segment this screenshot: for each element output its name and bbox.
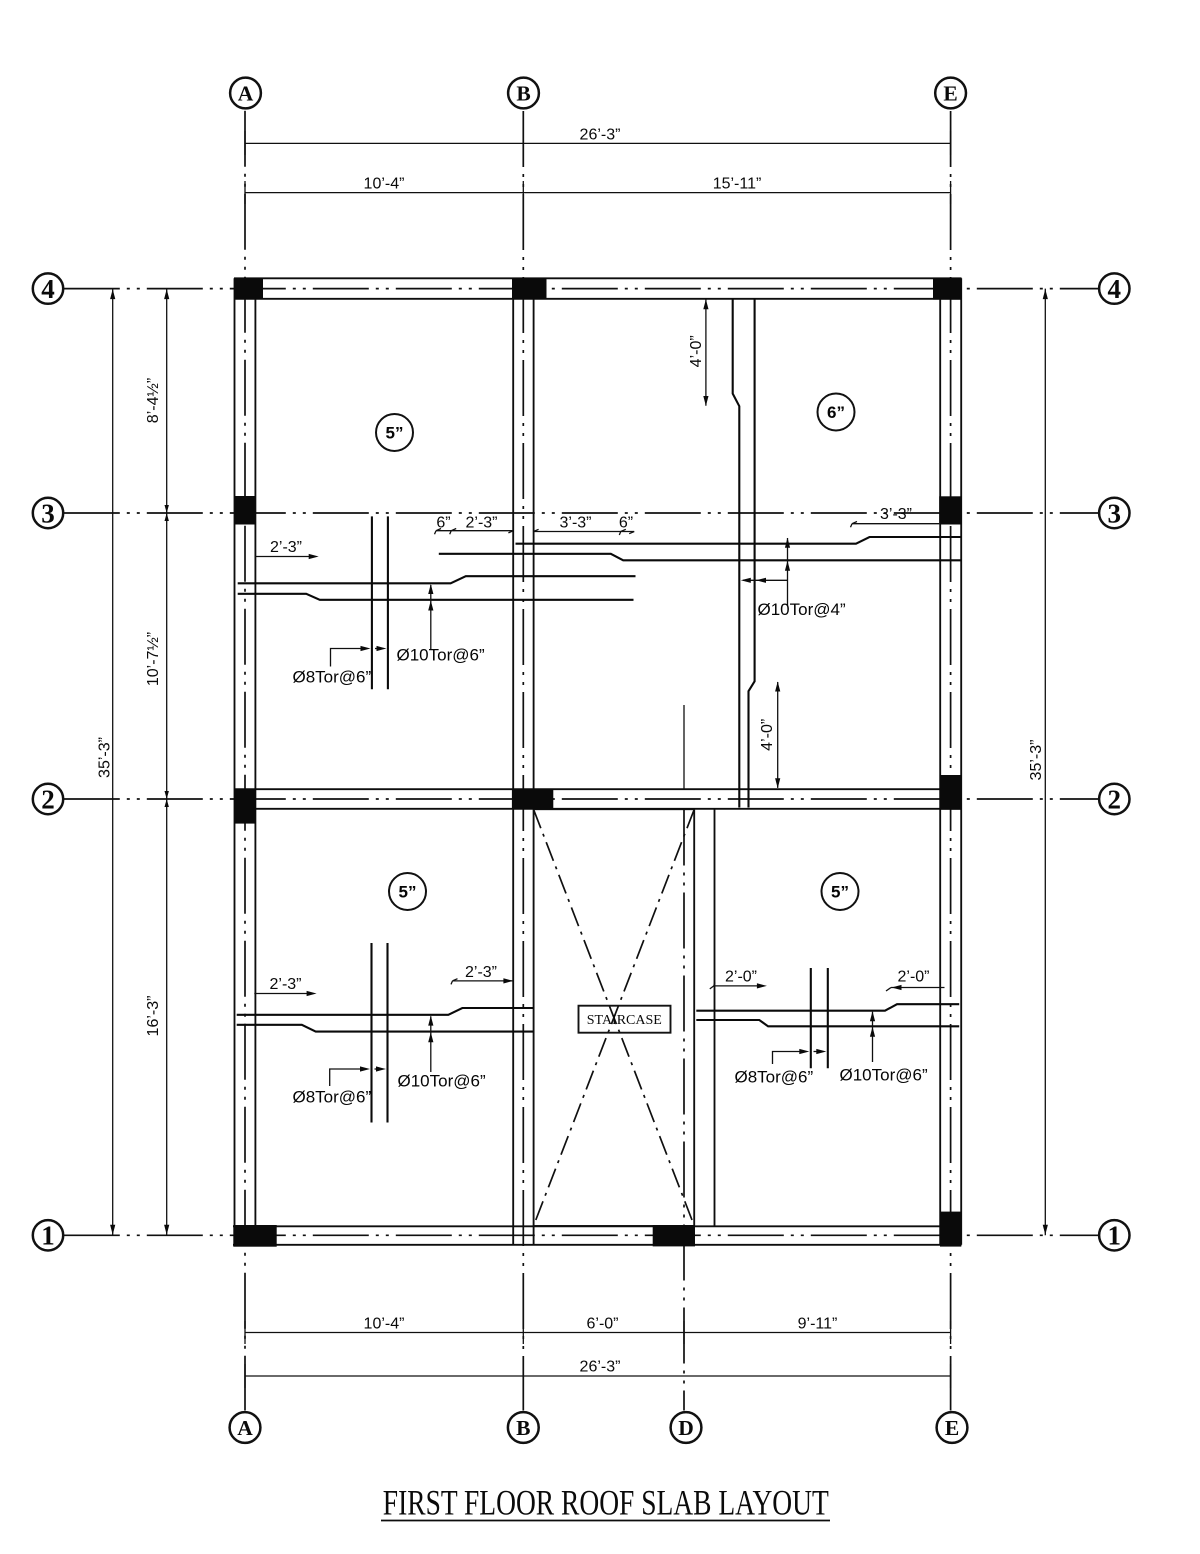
svg-text:3: 3 — [1108, 498, 1122, 528]
svg-text:2: 2 — [41, 784, 55, 814]
svg-text:15’-11”: 15’-11” — [713, 176, 762, 193]
svg-text:4: 4 — [1108, 274, 1122, 304]
svg-text:3’-3”: 3’-3” — [880, 506, 912, 523]
svg-text:8’-4½”: 8’-4½” — [145, 378, 162, 423]
svg-text:5”: 5” — [399, 883, 417, 902]
svg-text:2’-3”: 2’-3” — [465, 964, 497, 981]
svg-text:B: B — [516, 82, 530, 106]
svg-text:26’-3”: 26’-3” — [580, 127, 621, 144]
svg-text:9’-11”: 9’-11” — [798, 1316, 838, 1333]
svg-text:Ø10Tor@6”: Ø10Tor@6” — [397, 646, 485, 665]
svg-text:4’-0”: 4’-0” — [759, 719, 776, 751]
svg-text:Ø10Tor@6”: Ø10Tor@6” — [840, 1066, 928, 1085]
svg-text:16’-3”: 16’-3” — [145, 996, 162, 1037]
svg-text:E: E — [945, 1416, 959, 1440]
svg-text:35’-3”: 35’-3” — [97, 737, 114, 778]
svg-text:E: E — [943, 82, 957, 106]
svg-text:2’-3”: 2’-3” — [270, 539, 302, 556]
svg-text:1: 1 — [41, 1221, 55, 1251]
svg-text:Ø8Tor@6”: Ø8Tor@6” — [735, 1068, 814, 1087]
svg-text:6’-0”: 6’-0” — [586, 1316, 618, 1333]
svg-text:3: 3 — [41, 498, 55, 528]
svg-text:Ø10Tor@6”: Ø10Tor@6” — [398, 1072, 486, 1091]
svg-text:2’-0”: 2’-0” — [897, 969, 929, 986]
svg-text:B: B — [516, 1416, 530, 1440]
svg-text:6”: 6” — [436, 515, 450, 532]
svg-text:STAIRCASE: STAIRCASE — [587, 1013, 662, 1028]
svg-text:Ø8Tor@6”: Ø8Tor@6” — [293, 668, 372, 687]
svg-text:Ø10Tor@4”: Ø10Tor@4” — [758, 600, 846, 619]
svg-text:6”: 6” — [619, 515, 633, 532]
svg-text:10’-4”: 10’-4” — [364, 176, 405, 193]
svg-text:4: 4 — [41, 274, 55, 304]
svg-text:2: 2 — [1108, 784, 1122, 814]
svg-text:2’-3”: 2’-3” — [269, 976, 301, 993]
svg-text:FIRST FLOOR ROOF SLAB LAYOUT: FIRST FLOOR ROOF SLAB LAYOUT — [383, 1483, 829, 1523]
svg-text:Ø8Tor@6”: Ø8Tor@6” — [293, 1088, 372, 1107]
svg-text:10’-7½”: 10’-7½” — [145, 632, 162, 686]
svg-text:2’-3”: 2’-3” — [465, 515, 497, 532]
svg-text:A: A — [237, 1416, 253, 1440]
svg-text:2’-0”: 2’-0” — [725, 969, 757, 986]
svg-text:4’-0”: 4’-0” — [688, 335, 705, 367]
svg-text:6”: 6” — [827, 403, 845, 422]
svg-text:A: A — [238, 82, 254, 106]
svg-text:3’-3”: 3’-3” — [559, 515, 591, 532]
svg-text:5”: 5” — [386, 424, 404, 443]
svg-text:5”: 5” — [831, 883, 849, 902]
svg-text:35’-3”: 35’-3” — [1028, 740, 1045, 781]
svg-text:D: D — [678, 1416, 694, 1440]
svg-text:10’-4”: 10’-4” — [364, 1316, 405, 1333]
svg-text:26’-3”: 26’-3” — [580, 1359, 621, 1376]
svg-text:1: 1 — [1108, 1221, 1122, 1251]
